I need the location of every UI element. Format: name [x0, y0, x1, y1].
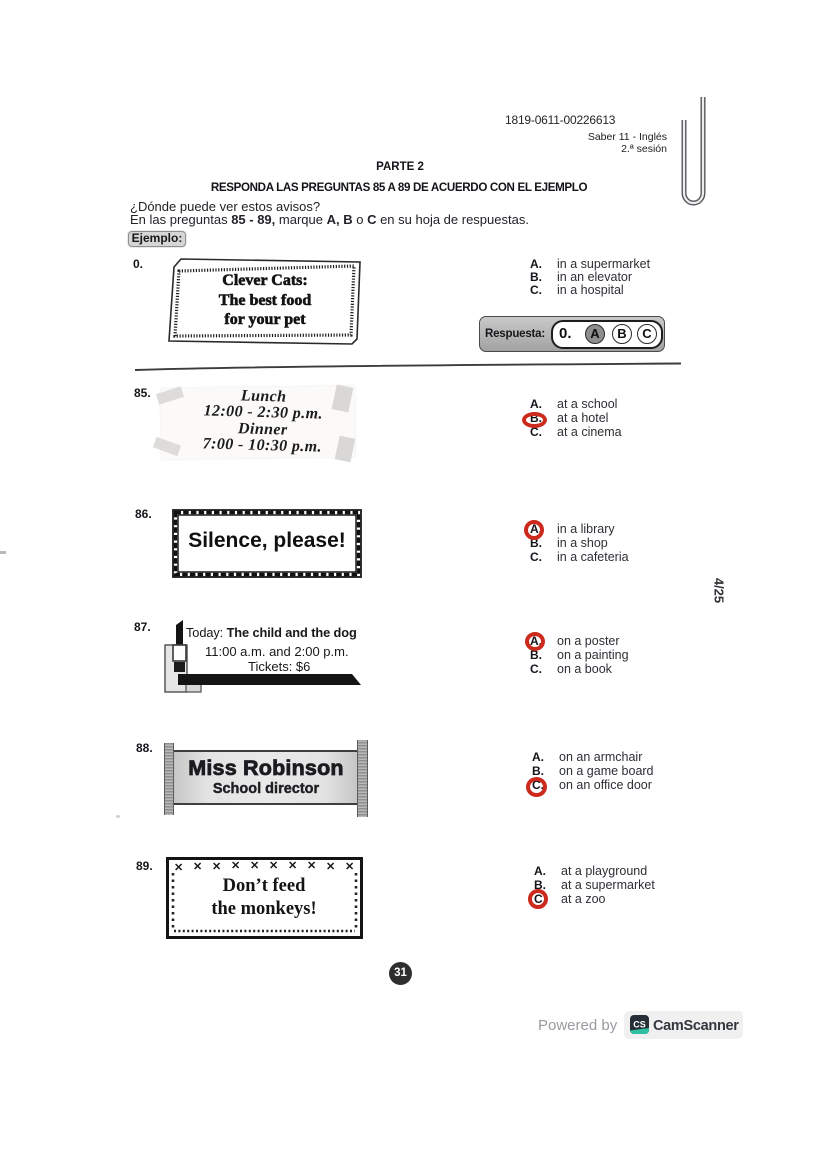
svg-text:✕: ✕: [231, 860, 240, 872]
svg-text:✕: ✕: [212, 861, 221, 873]
svg-text:✕: ✕: [174, 862, 183, 874]
svg-text:✕: ✕: [307, 860, 316, 872]
svg-text:✕: ✕: [288, 860, 297, 872]
svg-text:✕: ✕: [269, 860, 278, 872]
svg-text:✕: ✕: [250, 860, 259, 872]
svg-text:✕: ✕: [345, 861, 354, 873]
svg-text:✕: ✕: [193, 861, 202, 873]
svg-text:✕: ✕: [326, 861, 335, 873]
svg-text:CS: CS: [633, 1020, 646, 1030]
